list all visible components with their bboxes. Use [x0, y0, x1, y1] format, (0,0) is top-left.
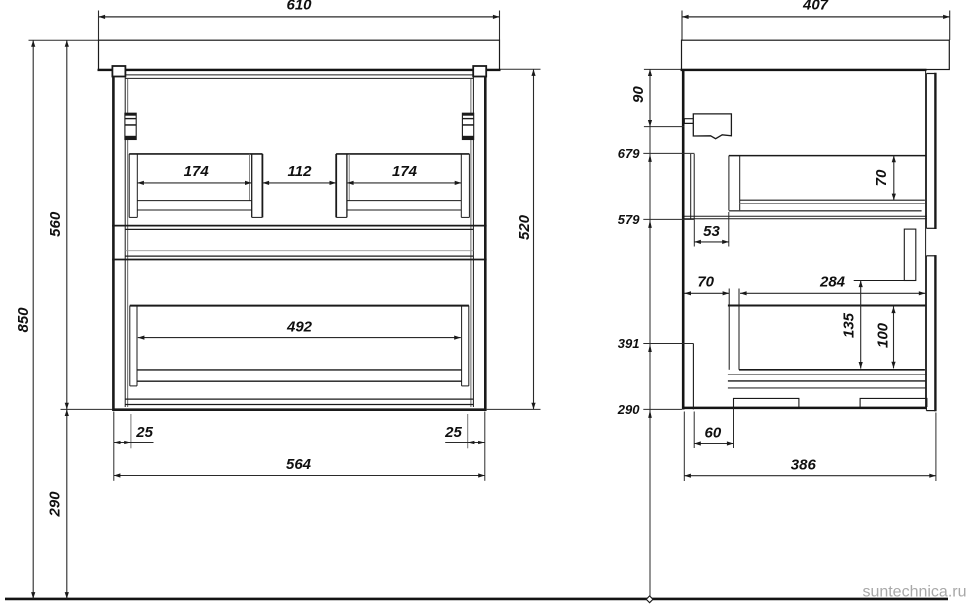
- svg-text:386: 386: [791, 457, 817, 474]
- svg-text:850: 850: [15, 307, 32, 333]
- svg-text:290: 290: [47, 491, 64, 518]
- svg-text:407: 407: [802, 0, 829, 14]
- svg-text:560: 560: [47, 211, 64, 237]
- svg-text:90: 90: [630, 86, 647, 103]
- svg-text:610: 610: [286, 0, 312, 14]
- svg-text:492: 492: [286, 319, 313, 336]
- svg-text:135: 135: [841, 312, 858, 338]
- svg-text:112: 112: [288, 163, 313, 180]
- svg-text:564: 564: [286, 456, 312, 473]
- svg-text:53: 53: [703, 223, 720, 240]
- svg-text:suntechnica.ru: suntechnica.ru: [862, 584, 966, 601]
- svg-text:70: 70: [697, 274, 714, 291]
- svg-text:174: 174: [184, 163, 210, 180]
- svg-text:290: 290: [617, 402, 640, 417]
- svg-text:25: 25: [444, 424, 462, 441]
- svg-text:70: 70: [873, 169, 890, 186]
- svg-text:391: 391: [618, 336, 640, 351]
- svg-text:679: 679: [618, 146, 640, 161]
- svg-text:284: 284: [819, 274, 846, 291]
- svg-text:520: 520: [516, 214, 533, 240]
- svg-text:60: 60: [705, 425, 722, 442]
- svg-text:25: 25: [135, 424, 153, 441]
- svg-text:174: 174: [392, 163, 418, 180]
- svg-text:100: 100: [875, 322, 892, 348]
- svg-text:579: 579: [618, 212, 640, 227]
